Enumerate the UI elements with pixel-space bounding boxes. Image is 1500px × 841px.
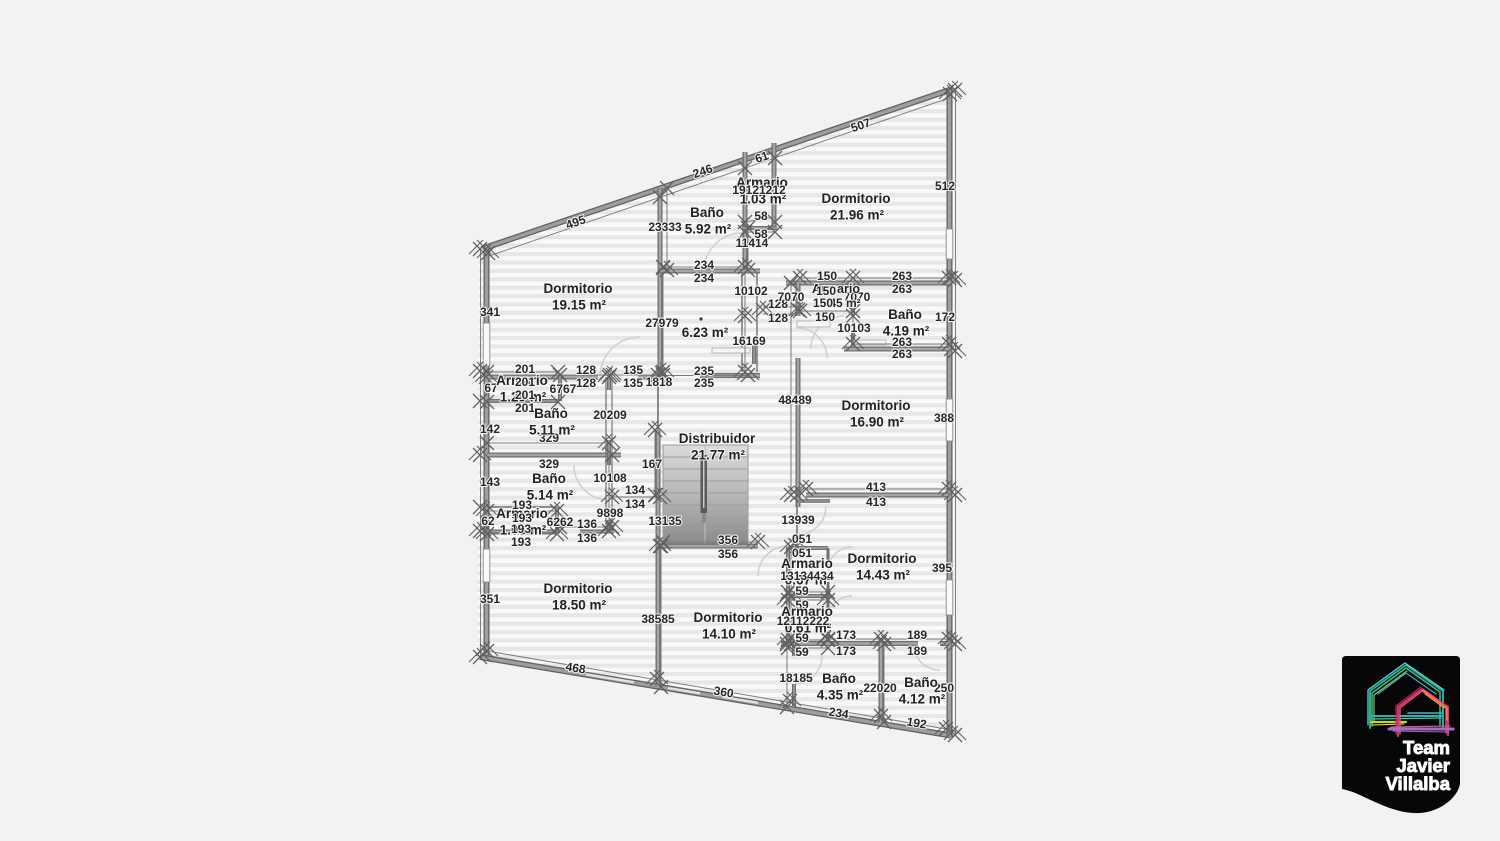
svg-text:16169: 16169 [732,334,766,348]
svg-text:173: 173 [836,628,856,642]
svg-text:5.14 m²: 5.14 m² [527,488,574,503]
svg-text:263: 263 [892,282,912,296]
svg-text:201: 201 [515,388,535,402]
svg-text:150: 150 [813,296,833,310]
svg-text:136: 136 [577,517,597,531]
svg-text:150: 150 [817,269,837,283]
svg-text:263: 263 [892,269,912,283]
svg-text:18185: 18185 [779,671,813,685]
svg-text:Villalba: Villalba [1386,773,1451,794]
svg-text:10103: 10103 [837,321,871,335]
svg-text:356: 356 [718,547,738,561]
svg-text:19121212: 19121212 [732,183,786,197]
svg-text:27979: 27979 [645,316,679,330]
svg-text:341: 341 [480,305,500,319]
svg-text:Baño: Baño [822,671,856,686]
svg-text:1818: 1818 [646,375,673,389]
svg-text:38585: 38585 [641,612,675,626]
svg-text:14.10 m²: 14.10 m² [702,627,757,642]
svg-text:Baño: Baño [534,406,568,421]
svg-text:143: 143 [480,475,500,489]
svg-text:128: 128 [576,376,596,390]
svg-text:413: 413 [866,480,886,494]
svg-text:134: 134 [625,497,645,511]
svg-text:23333: 23333 [648,220,682,234]
svg-text:10108: 10108 [593,471,627,485]
svg-text:Baño: Baño [904,675,938,690]
svg-text:58: 58 [754,227,768,241]
svg-text:62: 62 [481,514,495,528]
svg-text:388: 388 [934,411,954,425]
svg-text:5.11 m²: 5.11 m² [529,423,575,438]
svg-text:189: 189 [907,628,927,642]
svg-text:21.77 m²: 21.77 m² [691,448,746,463]
svg-text:21.96 m²: 21.96 m² [830,208,885,223]
svg-text:12112222: 12112222 [777,614,830,628]
svg-text:128: 128 [768,311,788,325]
svg-text:6.23 m²: 6.23 m² [682,325,729,340]
svg-text:189: 189 [907,644,927,658]
svg-text:150: 150 [815,310,835,324]
svg-text:Baño: Baño [532,471,566,486]
svg-text:6262: 6262 [547,515,574,529]
svg-text:Dormitorio: Dormitorio [822,191,891,206]
svg-text:13135: 13135 [648,514,682,528]
svg-text:20209: 20209 [593,408,627,422]
svg-text:Dormitorio: Dormitorio [544,281,613,296]
svg-text:142: 142 [480,422,500,436]
svg-text:13134434: 13134434 [780,569,834,583]
svg-text:Dormitorio: Dormitorio [694,610,763,625]
svg-text:18.50 m²: 18.50 m² [552,598,607,613]
svg-text:172: 172 [935,310,955,324]
svg-text:4.12 m²: 4.12 m² [899,692,946,707]
svg-text:193: 193 [511,522,531,536]
svg-text:6767: 6767 [550,382,577,396]
svg-text:16.90 m²: 16.90 m² [850,415,905,430]
svg-text:Distribuidor: Distribuidor [679,431,756,446]
svg-text:263: 263 [892,347,912,361]
svg-text:395: 395 [932,561,952,575]
svg-text:135: 135 [623,376,643,390]
svg-text:Dormitorio: Dormitorio [848,551,917,566]
svg-text:48489: 48489 [778,393,812,407]
svg-text:135: 135 [623,363,643,377]
svg-text:4.19 m²: 4.19 m² [883,324,930,339]
svg-text:136: 136 [577,531,597,545]
svg-text:Baño: Baño [888,307,922,322]
svg-text:512: 512 [935,179,955,193]
svg-text:356: 356 [718,533,738,547]
svg-text:128: 128 [576,363,596,377]
svg-text:351: 351 [480,592,500,606]
svg-text:22020: 22020 [863,681,897,695]
svg-text:051: 051 [792,532,812,546]
svg-text:5.92 m²: 5.92 m² [685,222,732,237]
svg-text:14.43 m²: 14.43 m² [856,568,911,583]
svg-text:59: 59 [795,645,809,659]
svg-text:413: 413 [866,495,886,509]
svg-text:329: 329 [539,457,559,471]
svg-text:201: 201 [515,375,535,389]
svg-text:7070: 7070 [778,290,805,304]
svg-text:173: 173 [836,644,856,658]
svg-text:Dormitorio: Dormitorio [544,581,613,596]
svg-text:234: 234 [694,271,714,285]
svg-text:13939: 13939 [781,513,815,527]
svg-text:4.35 m²: 4.35 m² [817,688,864,703]
svg-text:167: 167 [642,457,662,471]
svg-text:Dormitorio: Dormitorio [842,398,911,413]
svg-text:19.15 m²: 19.15 m² [552,298,607,313]
svg-text:Baño: Baño [690,205,724,220]
svg-text:235: 235 [694,376,714,390]
svg-text:10102: 10102 [734,284,768,298]
svg-text:9898: 9898 [597,506,624,520]
svg-text:234: 234 [694,258,714,272]
svg-text:58: 58 [754,209,768,223]
svg-text:134: 134 [625,483,645,497]
